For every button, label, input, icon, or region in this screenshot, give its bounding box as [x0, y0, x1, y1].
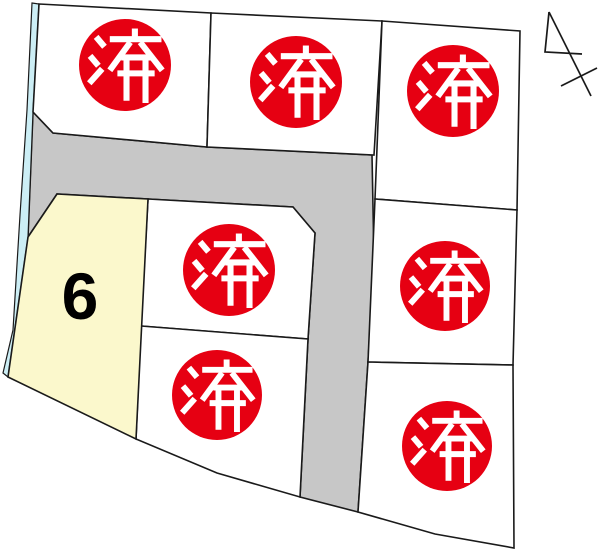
site-map: 6 — [0, 0, 600, 555]
sold-badge — [172, 350, 262, 440]
sold-badge — [400, 241, 490, 331]
lot-map-canvas: 6 — [0, 0, 600, 555]
sold-badge — [407, 45, 499, 137]
sold-badge — [250, 36, 342, 128]
sold-badge — [79, 19, 171, 111]
sold-badge — [183, 224, 275, 316]
north-arrow-icon — [545, 12, 597, 96]
lot-number-label: 6 — [62, 259, 99, 333]
sold-badge — [402, 401, 492, 491]
